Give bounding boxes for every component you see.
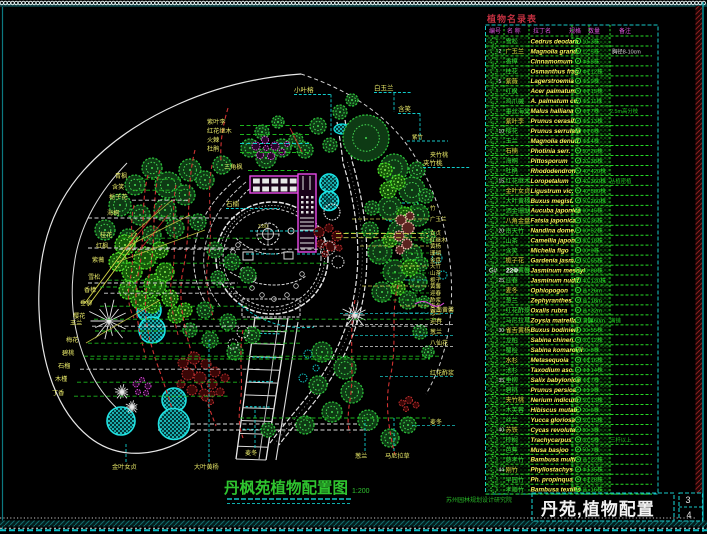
svg-text:备注: 备注	[619, 27, 631, 35]
svg-text:15株: 15株	[591, 416, 603, 424]
svg-text:丹枫苑植物配置图: 丹枫苑植物配置图	[224, 478, 348, 497]
svg-text:栀子: 栀子	[430, 276, 442, 284]
svg-text:Lagerstroemia: Lagerstroemia	[531, 78, 575, 85]
svg-text:夹竹桃: 夹竹桃	[506, 396, 525, 404]
svg-text:Ligustrum vic.: Ligustrum vic.	[531, 188, 574, 195]
svg-text:慈孝竹: 慈孝竹	[506, 456, 525, 464]
svg-text:金叶女贞: 金叶女贞	[506, 187, 531, 195]
svg-text:Jasminum nudif.: Jasminum nudif.	[531, 277, 581, 284]
svg-text:竹: 竹	[430, 204, 436, 212]
svg-text:黄馨: 黄馨	[430, 282, 442, 290]
svg-text:9株: 9株	[591, 247, 600, 255]
svg-text:雪松: 雪松	[506, 38, 518, 46]
svg-text:植物名录表: 植物名录表	[486, 13, 537, 24]
svg-text:Osmanthus frag.: Osmanthus frag.	[531, 68, 581, 75]
svg-text:50: 50	[583, 219, 589, 225]
svg-text:18株: 18株	[591, 237, 603, 245]
svg-text:Salix babylonica: Salix babylonica	[531, 377, 581, 384]
svg-text:苏铁: 苏铁	[506, 426, 518, 434]
svg-text:Loropetalum: Loropetalum	[531, 178, 570, 185]
svg-text:22株: 22株	[591, 456, 603, 464]
svg-text:苏州园林规划设计研究院: 苏州园林规划设计研究院	[446, 496, 512, 504]
svg-text:麦冬: 麦冬	[245, 449, 257, 457]
svg-text:水杉: 水杉	[506, 356, 518, 364]
svg-text:120株: 120株	[591, 276, 607, 284]
svg-text:22Φ: 22Φ	[506, 268, 519, 275]
svg-text:Nandina dome.: Nandina dome.	[531, 228, 576, 235]
svg-text:00: 00	[583, 438, 589, 444]
svg-text:5: 5	[499, 79, 502, 85]
svg-text:Φ8: Φ8	[583, 139, 590, 145]
svg-text:Fatsia japonica: Fatsia japonica	[531, 218, 577, 225]
svg-text:小叶榕: 小叶榕	[294, 85, 314, 94]
svg-text:紫薇: 紫薇	[506, 77, 518, 85]
svg-text:Zoysia matrella: Zoysia matrella	[530, 317, 577, 324]
svg-text:马尼拉草: 马尼拉草	[385, 452, 410, 460]
svg-text:20: 20	[583, 159, 589, 165]
svg-text:孝顺竹: 孝顺竹	[506, 486, 525, 494]
svg-text:7株: 7株	[591, 376, 600, 384]
svg-text:刚竹: 刚竹	[506, 466, 518, 474]
svg-text:杜鹃: 杜鹃	[506, 167, 518, 175]
svg-text:Prunus cerasif.: Prunus cerasif.	[531, 118, 577, 125]
svg-text:规格: 规格	[569, 27, 581, 35]
svg-text:15: 15	[499, 179, 505, 185]
svg-text:Prunus persica: Prunus persica	[531, 387, 577, 394]
svg-text:16株: 16株	[591, 356, 603, 364]
svg-text:棕榈: 棕榈	[506, 436, 518, 444]
svg-text:Φ5: Φ5	[583, 79, 590, 85]
svg-text:Sabina komarovii: Sabina komarovii	[531, 347, 583, 354]
svg-text:88株: 88株	[591, 266, 603, 274]
svg-text:4: 4	[686, 510, 691, 520]
svg-text:Cedrus deodara: Cedrus deodara	[531, 38, 579, 45]
svg-text:260株: 260株	[591, 197, 607, 205]
svg-text:木芙蓉: 木芙蓉	[506, 406, 525, 414]
svg-text:数量: 数量	[588, 27, 600, 35]
svg-text:26株: 26株	[591, 147, 603, 155]
svg-text:Zephyranthes: Zephyranthes	[530, 297, 573, 304]
svg-text:25: 25	[499, 278, 505, 284]
svg-text:40: 40	[583, 268, 589, 274]
svg-text:石榴: 石榴	[58, 362, 70, 370]
svg-text:玉兰: 玉兰	[506, 137, 518, 145]
svg-text:6株: 6株	[591, 127, 600, 135]
svg-text:9株: 9株	[591, 386, 600, 394]
svg-text:广玉兰: 广玉兰	[430, 215, 447, 223]
svg-text:红枫: 红枫	[96, 242, 108, 250]
svg-text:Cycas revoluta: Cycas revoluta	[531, 427, 576, 434]
svg-text:海桐: 海桐	[107, 209, 119, 217]
svg-text:8株: 8株	[591, 57, 600, 65]
svg-text:Φ8: Φ8	[583, 358, 590, 364]
svg-text:40: 40	[583, 179, 589, 185]
svg-text:拉丁名: 拉丁名	[533, 27, 551, 35]
svg-text:丝兰: 丝兰	[506, 416, 518, 424]
svg-text:420株: 420株	[591, 167, 607, 175]
svg-text:丹苑,植物配置: 丹苑,植物配置	[541, 499, 655, 519]
svg-text:13株: 13株	[591, 117, 603, 125]
svg-text:50: 50	[583, 418, 589, 424]
svg-text:迎春: 迎春	[506, 277, 518, 285]
svg-text:麦冬: 麦冬	[430, 418, 442, 426]
svg-text:Michelia figo: Michelia figo	[531, 248, 569, 255]
svg-text:梅花: 梅花	[66, 336, 78, 344]
svg-text:360株: 360株	[591, 177, 607, 185]
svg-text:含笑: 含笑	[112, 183, 124, 191]
svg-text:55株: 55株	[591, 326, 603, 334]
svg-text:Gardenia jasm.: Gardenia jasm.	[531, 258, 576, 265]
svg-text:50: 50	[583, 149, 589, 155]
svg-text:36株: 36株	[591, 217, 603, 225]
svg-text:青枫: 青枫	[115, 172, 127, 180]
svg-text:海桐: 海桐	[506, 157, 518, 165]
svg-text:38株: 38株	[591, 157, 603, 165]
svg-text:编号: 编号	[489, 27, 501, 35]
svg-text:50: 50	[583, 398, 589, 404]
svg-text:13株: 13株	[591, 396, 603, 404]
svg-text:4株: 4株	[591, 137, 600, 145]
svg-text:白玉兰: 白玉兰	[374, 83, 394, 92]
svg-text:早园竹: 早园竹	[506, 476, 525, 484]
svg-text:50: 50	[583, 348, 589, 354]
svg-text:Pittosporum: Pittosporum	[531, 158, 568, 165]
svg-text:黄杨: 黄杨	[430, 242, 442, 250]
svg-text:樱花: 樱花	[506, 127, 518, 135]
svg-text:垂柳: 垂柳	[80, 299, 92, 307]
svg-text:山茶: 山茶	[430, 269, 442, 277]
svg-text:50: 50	[583, 259, 589, 265]
svg-text:Φ8: Φ8	[583, 59, 590, 65]
svg-text:44: 44	[499, 467, 505, 473]
svg-text:红枫: 红枫	[506, 87, 518, 95]
svg-text:名 称: 名 称	[507, 27, 521, 35]
svg-text:16株: 16株	[591, 486, 603, 494]
svg-text:1:200: 1:200	[352, 488, 370, 495]
svg-text:30: 30	[583, 328, 589, 334]
svg-text:10: 10	[583, 39, 589, 45]
svg-text:5株: 5株	[591, 47, 600, 55]
svg-text:80: 80	[583, 239, 589, 245]
svg-text:桂花: 桂花	[506, 67, 518, 75]
svg-text:Taxodium asc.: Taxodium asc.	[531, 367, 575, 374]
svg-text:Malus halliana: Malus halliana	[531, 108, 575, 115]
svg-text:12株: 12株	[591, 67, 603, 75]
svg-text:八角金盘: 八角金盘	[506, 217, 531, 225]
svg-text:00: 00	[583, 249, 589, 255]
svg-text:南天竹: 南天竹	[506, 227, 525, 235]
svg-text:2.5m高分枝: 2.5m高分枝	[610, 107, 639, 115]
svg-text:天竹: 天竹	[430, 262, 442, 270]
svg-text:雀舌黄杨: 雀舌黄杨	[506, 326, 531, 334]
svg-text:木槿: 木槿	[55, 375, 67, 383]
svg-text:葱兰: 葱兰	[506, 297, 518, 305]
svg-text:Aucuba japonica: Aucuba japonica	[530, 208, 582, 215]
svg-text:紫叶李: 紫叶李	[207, 118, 226, 126]
svg-text:35: 35	[499, 378, 505, 384]
svg-text:洒金珊瑚: 洒金珊瑚	[506, 207, 531, 215]
svg-text:Bambusa multi.: Bambusa multi.	[531, 457, 578, 464]
svg-text:迎春: 迎春	[430, 317, 442, 325]
svg-text:大叶黄杨: 大叶黄杨	[506, 197, 531, 205]
svg-text:2: 2	[499, 49, 502, 55]
svg-text:20: 20	[583, 408, 589, 414]
svg-text:山茶: 山茶	[506, 237, 518, 245]
svg-text:雪松: 雪松	[88, 273, 100, 281]
svg-text:金叶女贞: 金叶女贞	[112, 463, 137, 471]
svg-text:8株: 8株	[591, 346, 600, 354]
svg-text:紫薇: 紫薇	[92, 256, 104, 264]
svg-text:Nerium indicum: Nerium indicum	[531, 397, 579, 404]
svg-text:5株: 5株	[591, 436, 600, 444]
svg-text:Yucca gloriosa: Yucca gloriosa	[531, 417, 576, 424]
svg-text:三角枫: 三角枫	[224, 163, 243, 171]
svg-text:垂柳: 垂柳	[506, 376, 518, 384]
svg-text:金盘: 金盘	[430, 256, 442, 264]
svg-text:Ph. propinqua: Ph. propinqua	[531, 477, 574, 484]
svg-text:碧桃: 碧桃	[62, 349, 74, 357]
svg-text:夹竹桃: 夹竹桃	[423, 158, 443, 167]
svg-text:含笑: 含笑	[506, 247, 518, 255]
svg-text:桂花: 桂花	[100, 231, 112, 239]
svg-text:丛: 丛	[583, 457, 588, 464]
svg-text:3株: 3株	[591, 426, 600, 434]
svg-text:马尼拉草: 马尼拉草	[506, 316, 531, 324]
svg-text:麦冬: 麦冬	[506, 287, 518, 295]
svg-text:栀子花: 栀子花	[506, 257, 525, 265]
svg-text:丛: 丛	[583, 297, 588, 304]
svg-text:紫叶李: 紫叶李	[506, 117, 525, 125]
svg-text:15株: 15株	[591, 87, 603, 95]
svg-text:9株: 9株	[591, 77, 600, 85]
svg-text:10: 10	[499, 129, 505, 135]
svg-text:珊瑚: 珊瑚	[430, 249, 442, 257]
svg-text:50: 50	[583, 448, 589, 454]
svg-text:丛: 丛	[583, 287, 588, 294]
svg-text:Metasequoia: Metasequoia	[531, 357, 570, 364]
svg-text:Acer palmatum: Acer palmatum	[530, 88, 577, 95]
svg-text:Trachycarpus: Trachycarpus	[531, 437, 573, 444]
svg-text:丛: 丛	[583, 307, 588, 314]
svg-text:红继木: 红继木	[430, 236, 447, 244]
svg-text:12株: 12株	[591, 336, 603, 344]
svg-text:鸡爪槭: 鸡爪槭	[506, 97, 525, 105]
svg-text:11株: 11株	[591, 97, 603, 105]
svg-text:Φ5: Φ5	[583, 119, 590, 125]
svg-text:3: 3	[685, 495, 690, 505]
svg-text:Φ6: Φ6	[583, 129, 590, 135]
svg-text:香樟: 香樟	[84, 286, 96, 294]
svg-text:Camellia japon.: Camellia japon.	[531, 238, 577, 245]
svg-text:A. palmatum cv.: A. palmatum cv.	[530, 98, 579, 105]
svg-text:40: 40	[499, 428, 505, 434]
svg-text:樱花: 樱花	[73, 312, 85, 320]
svg-text:Φ5: Φ5	[583, 388, 590, 394]
svg-text:火棘: 火棘	[207, 136, 220, 144]
svg-text:石楠: 石楠	[226, 199, 240, 208]
svg-text:60: 60	[583, 229, 589, 235]
svg-text:含笑: 含笑	[398, 104, 412, 113]
svg-text:40: 40	[583, 169, 589, 175]
svg-text:葱兰: 葱兰	[430, 328, 442, 336]
svg-text:女贞: 女贞	[430, 229, 442, 237]
svg-text:Jasminum mesnyi: Jasminum mesnyi	[531, 267, 586, 274]
svg-text:60: 60	[583, 209, 589, 215]
svg-text:Φ5: Φ5	[583, 99, 590, 105]
svg-text:胸径8-10cm: 胸径8-10cm	[612, 47, 641, 55]
svg-text:丛植密植: 丛植密植	[610, 177, 632, 185]
svg-text:Prunus serrulata: Prunus serrulata	[531, 128, 582, 135]
svg-text:葱兰: 葱兰	[355, 452, 367, 460]
svg-text:80: 80	[583, 428, 589, 434]
svg-text:Φ6: Φ6	[583, 69, 590, 75]
svg-text:580株: 580株	[591, 187, 607, 195]
svg-text:6株: 6株	[591, 406, 600, 414]
svg-text:碧桃: 碧桃	[506, 386, 518, 394]
svg-text:栀子花: 栀子花	[109, 193, 128, 201]
svg-text:Φ3: Φ3	[583, 478, 590, 484]
svg-text:Photinia serr.: Photinia serr.	[531, 148, 571, 155]
svg-text:红花继木: 红花继木	[207, 127, 232, 135]
svg-text:池杉: 池杉	[506, 366, 518, 374]
svg-text:芭蕉: 芭蕉	[506, 446, 518, 454]
svg-text:香樟: 香樟	[506, 58, 518, 66]
svg-text:满铺: 满铺	[610, 316, 621, 324]
svg-text:杜鹃: 杜鹃	[207, 145, 219, 153]
svg-text:Musa basjoo: Musa basjoo	[531, 447, 569, 454]
svg-text:65株: 65株	[591, 257, 603, 265]
svg-text:G#: G#	[489, 269, 498, 275]
svg-text:20: 20	[499, 228, 505, 234]
svg-text:Φ8: Φ8	[583, 368, 590, 374]
svg-text:酢浆: 酢浆	[430, 296, 442, 304]
svg-text:Oxalis rubra: Oxalis rubra	[531, 307, 568, 314]
svg-text:Sabina chinen.: Sabina chinen.	[531, 337, 576, 344]
svg-text:00: 00	[583, 338, 589, 344]
svg-text:夹竹桃: 夹竹桃	[430, 151, 448, 159]
svg-text:红花酢浆: 红花酢浆	[430, 369, 454, 377]
svg-text:迎春: 迎春	[430, 289, 442, 297]
svg-text:Rhododendron: Rhododendron	[531, 168, 576, 175]
svg-text:Cinnamomum: Cinnamomum	[531, 58, 573, 65]
svg-text:30: 30	[499, 328, 505, 334]
svg-text:三杆以上: 三杆以上	[610, 436, 632, 444]
svg-text:龙柏: 龙柏	[506, 336, 518, 344]
svg-text:玉兰: 玉兰	[70, 319, 82, 327]
svg-text:12: 12	[583, 49, 589, 55]
svg-text:Ophiopogon: Ophiopogon	[531, 287, 569, 294]
svg-text:32m: 32m	[591, 308, 602, 314]
svg-text:Φ8: Φ8	[583, 378, 590, 384]
svg-text:广玉兰: 广玉兰	[506, 48, 525, 56]
svg-text:红花酢浆: 红花酢浆	[506, 307, 531, 315]
svg-text:7株: 7株	[591, 107, 600, 115]
svg-text:红花继木: 红花继木	[506, 177, 531, 185]
svg-text:28株: 28株	[591, 476, 603, 484]
svg-text:Buxus bodinieri: Buxus bodinieri	[531, 327, 579, 334]
svg-text:八仙花: 八仙花	[430, 339, 448, 347]
svg-text:垂丝海棠: 垂丝海棠	[506, 107, 531, 115]
svg-text:Hibiscus mutab.: Hibiscus mutab.	[531, 407, 580, 414]
svg-text:18m: 18m	[591, 298, 602, 304]
svg-text:40: 40	[583, 278, 589, 284]
svg-text:45株: 45株	[591, 207, 603, 215]
svg-text:蜀桧: 蜀桧	[506, 346, 518, 354]
svg-text:50: 50	[583, 199, 589, 205]
svg-text:Phyllostachys: Phyllostachys	[531, 467, 574, 474]
svg-text:35株: 35株	[591, 466, 603, 474]
svg-text:石楠: 石楠	[506, 147, 518, 155]
svg-text:3株: 3株	[591, 37, 600, 45]
svg-text:紫竹: 紫竹	[412, 133, 424, 141]
svg-text:Φ3: Φ3	[583, 468, 590, 474]
svg-text:Buxus megist.: Buxus megist.	[531, 198, 574, 205]
svg-text:云南黄馨: 云南黄馨	[430, 306, 454, 314]
svg-text:Magnolia denud.: Magnolia denud.	[531, 138, 581, 145]
svg-text:52株: 52株	[591, 227, 603, 235]
svg-text:40: 40	[583, 189, 589, 195]
svg-text:460m: 460m	[591, 318, 606, 324]
svg-text:丁香: 丁香	[52, 389, 64, 397]
svg-text:26m: 26m	[591, 288, 602, 294]
svg-text:14株: 14株	[591, 366, 603, 374]
svg-text:7株: 7株	[591, 446, 600, 454]
svg-text:Φ6: Φ6	[583, 89, 590, 95]
svg-text:Magnolia grand.: Magnolia grand.	[531, 48, 580, 55]
svg-text:Φ5: Φ5	[583, 109, 590, 115]
svg-text:3.80: 3.80	[258, 224, 268, 230]
svg-text:大叶黄杨: 大叶黄杨	[194, 463, 219, 471]
